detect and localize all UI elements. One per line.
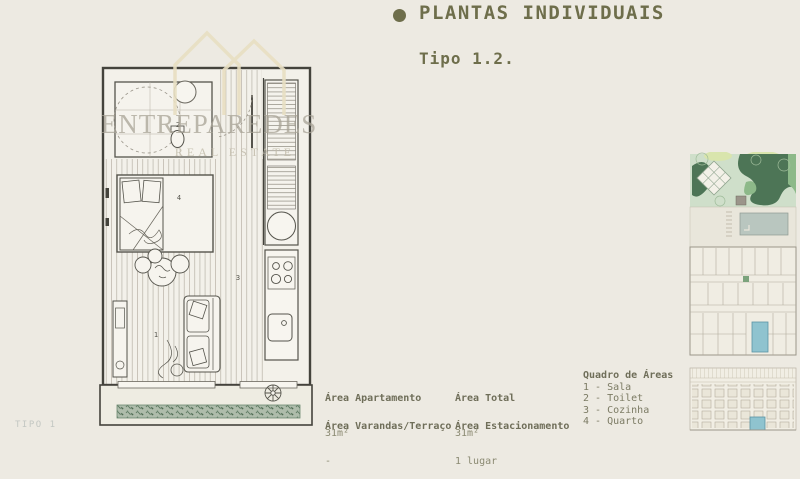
floor-plan-drawing: 2 4 1 3 ENTREPAREDES REAL ESTATE (85, 20, 325, 435)
elevation-thumbnail (688, 366, 798, 434)
legend-item-toilet: 2 - Toilet (583, 393, 673, 405)
title-bullet-icon (393, 9, 406, 22)
area-varandas-value: - (325, 456, 451, 468)
legend-item-cozinha: 3 - Cozinha (583, 405, 673, 417)
legend-title: Quadro de Áreas (583, 370, 673, 382)
pool-icon (740, 213, 788, 235)
washer-icon (268, 212, 296, 240)
legend-item-quarto: 4 - Quarto (583, 416, 673, 428)
area-estacionamento-block: Área Estacionamento 1 lugar (455, 398, 569, 479)
legend-item-sala: 1 - Sala (583, 382, 673, 394)
highlighted-unit (752, 322, 768, 352)
room-number-sala: 1 (154, 331, 158, 339)
footer-tipo-label: TIPO 1 (15, 420, 57, 430)
kitchen-area (265, 250, 298, 360)
page-subtitle: Tipo 1.2. (419, 50, 515, 68)
room-number-cozinha: 3 (236, 274, 240, 282)
planting-strip (117, 405, 300, 418)
areas-legend: Quadro de Áreas 1 - Sala 2 - Toilet 3 - … (583, 370, 673, 428)
area-estacionamento-value: 1 lugar (455, 456, 569, 468)
room-number-quarto: 4 (177, 194, 181, 202)
watermark-name: ENTREPAREDES (101, 109, 318, 139)
fan-icon (265, 385, 281, 401)
area-estacionamento-label: Área Estacionamento (455, 421, 569, 433)
terrace-plan (690, 207, 796, 247)
garden-plan (690, 152, 796, 207)
building-plan (690, 247, 796, 355)
closet-area (265, 80, 298, 245)
area-varandas-block: Área Varandas/Terraço - (325, 398, 451, 479)
watermark-tagline: REAL ESTATE (175, 145, 295, 159)
balcony-area (100, 382, 312, 426)
site-plan-thumbnail (688, 152, 798, 357)
bedroom-area (106, 175, 214, 252)
highlighted-unit-elevation (750, 417, 765, 430)
sideboard-icon (113, 301, 127, 377)
page-title: PLANTAS INDIVIDUAIS (419, 3, 665, 24)
area-varandas-label: Área Varandas/Terraço (325, 421, 451, 433)
